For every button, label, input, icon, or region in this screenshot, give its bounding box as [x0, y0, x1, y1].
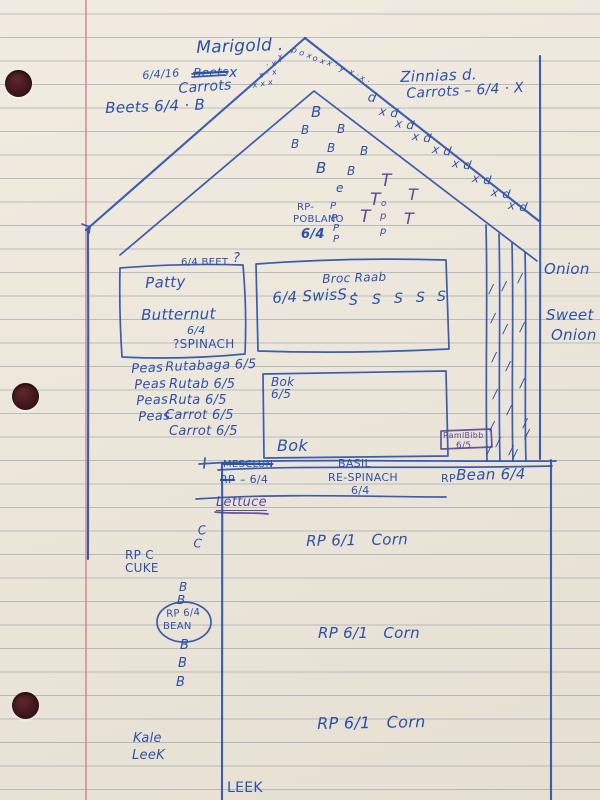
- handwritten-label: BEAN: [163, 622, 192, 632]
- handwritten-label: T: [370, 192, 381, 209]
- handwritten-label: Onion: [544, 262, 590, 277]
- handwritten-label: P: [330, 202, 336, 212]
- handwritten-label: e: [336, 182, 344, 194]
- handwritten-label: 6/4: [351, 485, 370, 496]
- handwritten-label: RP: [441, 473, 456, 484]
- handwritten-label: S: [394, 292, 403, 306]
- handwritten-label: 6/4/16: [142, 67, 180, 81]
- handwritten-label: C: [197, 524, 207, 537]
- onion-tick-mark: /: [525, 428, 529, 440]
- handwritten-label: 6/4 SwisS ·: [272, 287, 358, 306]
- onion-tick-mark: /: [518, 272, 522, 284]
- handwritten-label: RE-SPINACH: [328, 472, 398, 483]
- handwritten-label: Peas: [136, 393, 168, 408]
- handwritten-label: 6/5: [271, 388, 291, 400]
- onion-tick-mark: /: [503, 323, 507, 335]
- handwritten-label: POBLANO: [293, 215, 344, 225]
- handwritten-label: S: [372, 293, 381, 307]
- handwritten-label: p: [380, 227, 387, 237]
- handwritten-label: T: [360, 209, 371, 226]
- handwritten-label: Rutab 6/5: [169, 378, 235, 391]
- onion-tick-mark: /: [493, 388, 497, 400]
- handwritten-label: Broc Raab: [322, 271, 387, 285]
- handwritten-label: Bean 6/4: [456, 467, 526, 483]
- handwritten-label: x · x: [258, 68, 278, 80]
- handwritten-label: x d: [431, 143, 452, 158]
- handwritten-label: x d: [471, 172, 492, 187]
- handwritten-label: RP C: [125, 549, 154, 561]
- onion-tick-mark: /: [492, 351, 496, 363]
- handwritten-label: Peas: [134, 377, 166, 392]
- onion-tick-mark: /: [507, 404, 511, 416]
- handwritten-label: RP 6/1 Corn: [318, 626, 420, 641]
- handwritten-label: B: [311, 105, 322, 120]
- onion-tick-mark: /: [513, 448, 517, 460]
- handwritten-label: x ·: [358, 74, 371, 86]
- handwritten-label: Butternut: [141, 307, 216, 323]
- handwritten-label: RP 6/1 Corn: [306, 532, 408, 549]
- onion-tick-mark: /: [502, 280, 506, 292]
- handwritten-label: Carrot 6/5: [169, 425, 238, 438]
- handwritten-label: RP 6/1 Corn: [317, 714, 426, 732]
- handwritten-label: RP 6/4: [166, 608, 201, 620]
- handwritten-label: B: [337, 123, 346, 135]
- onion-tick-mark: /: [520, 321, 524, 333]
- handwritten-label: RP-: [297, 203, 314, 213]
- handwritten-label: Peas: [131, 361, 163, 376]
- onion-tick-mark: /: [490, 420, 494, 432]
- handwritten-label: LeeK: [132, 749, 165, 762]
- handwritten-annotations: Marigold .6/4/16BeetsxCarrotsBeets 6/4 ·…: [0, 0, 600, 800]
- handwritten-label: x d: [411, 130, 432, 145]
- handwritten-label: Lettuce: [216, 496, 267, 511]
- handwritten-label: Carrots: [178, 78, 232, 96]
- handwritten-label: MESCLUN: [223, 460, 273, 470]
- handwritten-label: S: [416, 291, 425, 305]
- handwritten-label: B: [347, 165, 356, 177]
- handwritten-label: P: [333, 224, 339, 234]
- handwritten-label: B: [327, 142, 336, 154]
- handwritten-label: B: [316, 161, 327, 176]
- handwritten-label: RP: [220, 474, 235, 485]
- handwritten-label: Patty: [145, 275, 186, 291]
- handwritten-label: x d: [507, 199, 528, 214]
- handwritten-label: T: [381, 173, 392, 190]
- handwritten-label: Kale: [133, 732, 162, 745]
- handwritten-label: 6/4: [187, 325, 206, 336]
- handwritten-label: B: [291, 138, 300, 150]
- handwritten-label: B: [177, 594, 186, 606]
- notebook-page: Marigold .6/4/16BeetsxCarrotsBeets 6/4 ·…: [0, 0, 600, 800]
- handwritten-label: o: [381, 200, 387, 209]
- handwritten-label: Rutabaga 6/5: [165, 358, 257, 374]
- handwritten-label: x ·: [277, 51, 290, 62]
- handwritten-label: RamlBibb: [443, 432, 484, 440]
- handwritten-label: 6/4 BEET: [181, 258, 228, 268]
- handwritten-label: p: [380, 212, 387, 222]
- handwritten-label: x d: [451, 157, 472, 172]
- handwritten-label: T: [404, 211, 414, 227]
- handwritten-label: d: [367, 91, 378, 105]
- handwritten-label: T: [408, 187, 418, 203]
- handwritten-label: Carrot 6/5: [165, 409, 234, 422]
- handwritten-label: Marigold .: [196, 37, 284, 57]
- handwritten-label: Sweet: [546, 308, 594, 323]
- handwritten-label: B: [179, 581, 188, 593]
- handwritten-label: B: [178, 657, 187, 670]
- onion-tick-mark: /: [487, 444, 491, 456]
- handwritten-label: S: [437, 290, 446, 304]
- handwritten-label: Beets 6/4 · B: [105, 98, 205, 116]
- handwritten-label: – 6/4: [240, 474, 268, 485]
- handwritten-label: B: [176, 676, 185, 689]
- onion-tick-mark: /: [491, 312, 495, 324]
- handwritten-label: 6/5: [456, 442, 471, 451]
- onion-tick-mark: /: [506, 360, 510, 372]
- onion-tick-mark: /: [489, 283, 493, 295]
- handwritten-label: Onion: [551, 328, 597, 343]
- handwritten-label: LEEK: [227, 781, 263, 795]
- handwritten-label: B: [180, 639, 189, 652]
- handwritten-label: x x x: [252, 78, 274, 89]
- handwritten-label: ?SPINACH: [173, 338, 235, 350]
- handwritten-label: ?: [233, 252, 240, 265]
- onion-tick-mark: /: [520, 377, 524, 389]
- handwritten-label: P: [333, 235, 339, 245]
- handwritten-label: B: [360, 145, 369, 157]
- handwritten-label: B: [301, 124, 310, 136]
- handwritten-label: Ruta 6/5: [169, 394, 227, 407]
- onion-tick-mark: /: [496, 436, 500, 448]
- handwritten-label: BASIL: [338, 458, 371, 469]
- handwritten-label: 6/4: [301, 228, 325, 241]
- handwritten-label: CUKE: [125, 562, 159, 574]
- handwritten-label: C: [193, 537, 203, 550]
- handwritten-label: Bok: [277, 438, 308, 454]
- handwritten-label: S: [349, 294, 358, 308]
